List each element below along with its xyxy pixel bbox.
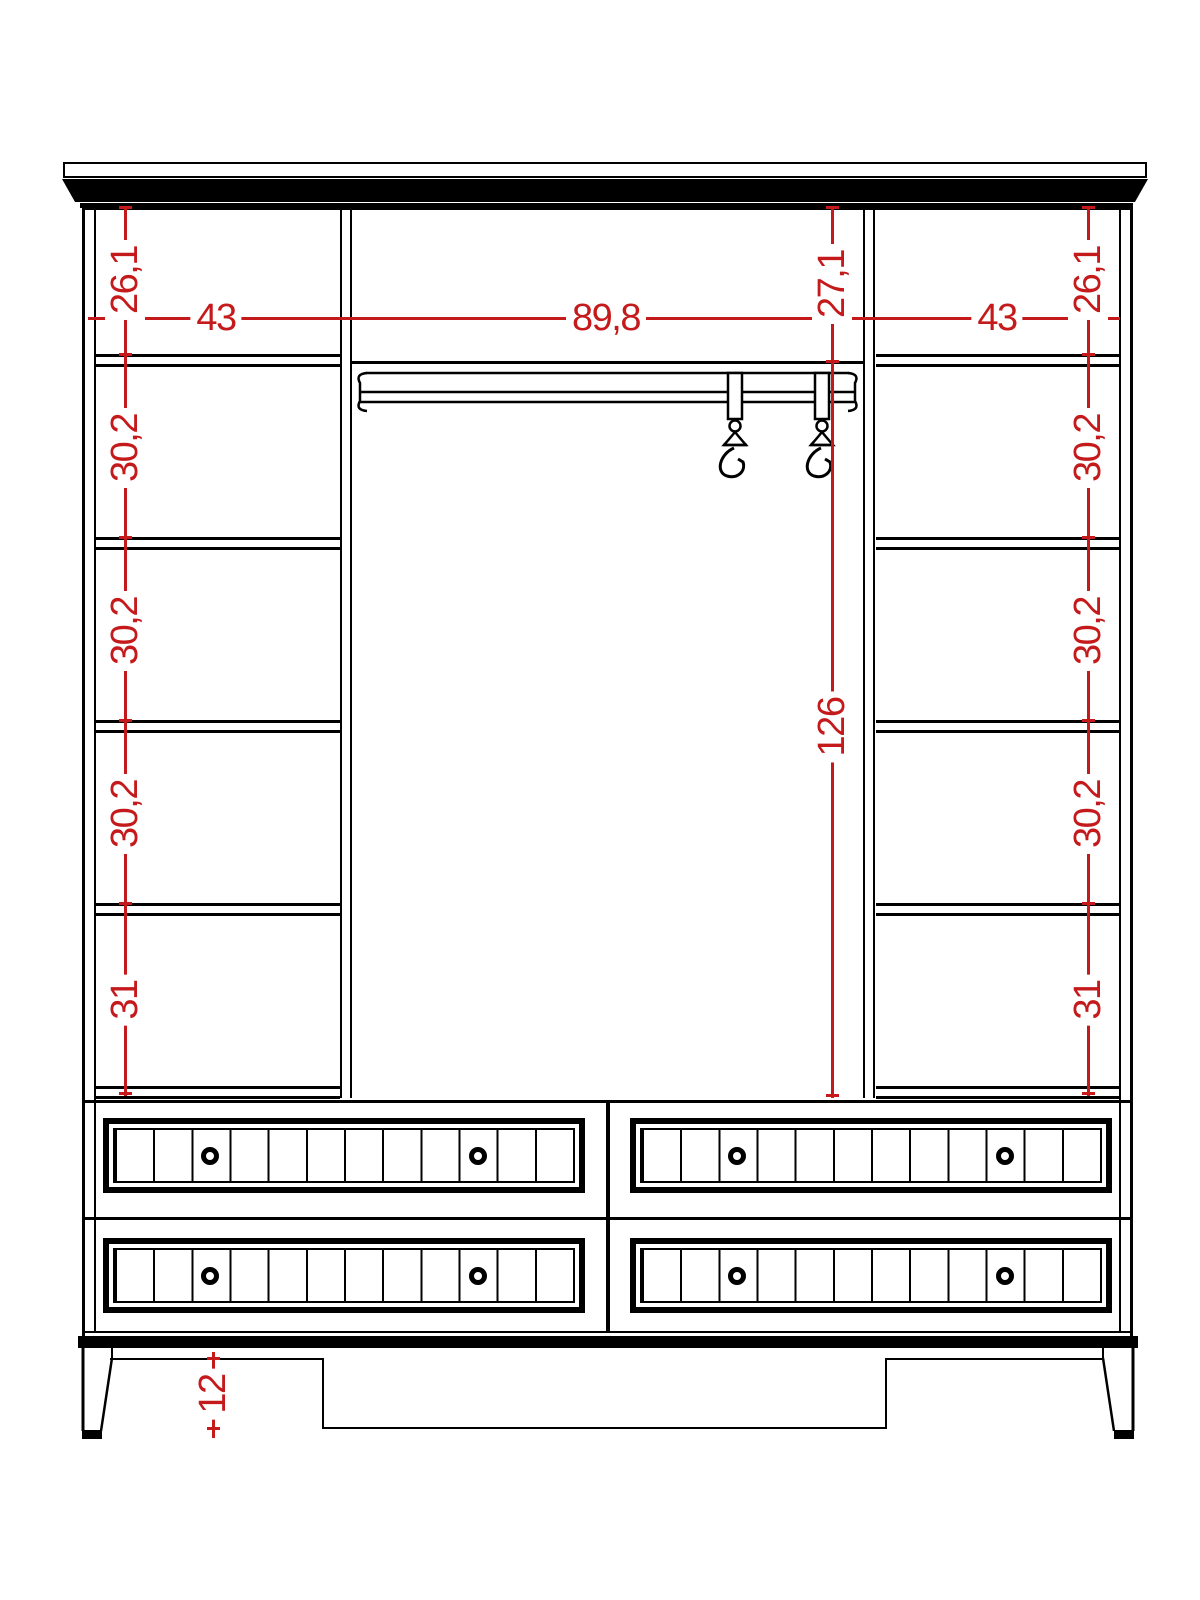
left-leg (80, 1346, 120, 1442)
right-side-panel-outer (1130, 207, 1133, 1348)
drawer-knob (201, 1147, 219, 1165)
dim-tick (119, 902, 132, 905)
dim-tick (119, 536, 132, 539)
right-shelf-5-top (876, 1086, 1120, 1089)
apron-line-right (886, 1358, 1104, 1360)
dim-tick (207, 1427, 220, 1430)
dim-label-center-top: 27,1 (812, 244, 852, 324)
dim-tick (1082, 206, 1095, 209)
hanger-hook-icon (720, 373, 747, 477)
left-shelf-4-top (96, 903, 340, 906)
drawer-knob (728, 1147, 746, 1165)
drawer-slats (642, 1250, 1100, 1301)
drawer-center-divider (606, 1103, 610, 1331)
right-shelf-2-bottom (876, 547, 1120, 550)
cornice-crown-band (62, 179, 1148, 202)
left-shelf-5-bottom (96, 1096, 340, 1099)
cornice-top-strip (63, 162, 1147, 178)
dim-label-right-top: 26,1 (1068, 240, 1108, 320)
dim-tick (1082, 1092, 1095, 1095)
dim-label-right-shelf3: 30,2 (1068, 774, 1108, 854)
dim-tick (1082, 719, 1095, 722)
dim-label-width-left: 43 (190, 298, 241, 338)
left-side-panel-outer (82, 207, 85, 1348)
dim-tick (1082, 902, 1095, 905)
dim-label-width-right: 43 (971, 298, 1022, 338)
drawer-knob (728, 1267, 746, 1285)
drawer-front (630, 1118, 1112, 1193)
right-divider-line-a (863, 209, 865, 1098)
left-divider-line-a (340, 209, 342, 1098)
drawer-front-panel (640, 1248, 1102, 1303)
drawer-front (630, 1238, 1112, 1313)
drawer-knob (469, 1147, 487, 1165)
carcass-top-line (82, 207, 1133, 210)
drawer-front-panel (113, 1248, 575, 1303)
left-shelf-2-top (96, 537, 340, 540)
dim-label-right-shelf2: 30,2 (1068, 591, 1108, 671)
right-leg (1096, 1346, 1136, 1442)
drawer-knob (996, 1267, 1014, 1285)
dim-tick (1082, 536, 1095, 539)
drawer-section-bottom-line (82, 1331, 1133, 1333)
dim-label-width-center: 89,8 (566, 298, 646, 338)
dim-label-right-bottom: 31 (1068, 974, 1108, 1025)
dim-label-right-shelf1: 30,2 (1068, 408, 1108, 488)
right-shelf-4-bottom (876, 913, 1120, 916)
left-shelf-3-bottom (96, 730, 340, 733)
right-side-panel-inner (1119, 209, 1121, 1331)
drawer-slats (115, 1250, 573, 1301)
left-side-panel-inner (94, 209, 96, 1331)
recess-bottom-edge (322, 1427, 887, 1429)
drawer-knob (996, 1147, 1014, 1165)
right-shelf-5-bottom (876, 1096, 1120, 1099)
left-shelf-2-bottom (96, 547, 340, 550)
left-shelf-1-bottom (96, 364, 340, 367)
dim-tick (826, 360, 839, 363)
drawer-slats (115, 1130, 573, 1181)
dim-tick (119, 719, 132, 722)
left-divider-line-b (350, 209, 352, 1098)
left-shelf-4-bottom (96, 913, 340, 916)
recess-right-edge (885, 1358, 887, 1427)
dim-label-left-shelf1: 30,2 (105, 408, 145, 488)
dim-label-center-height: 126 (812, 692, 852, 763)
wardrobe-technical-drawing: 43 89,8 43 26,1 30,2 30,2 30,2 31 26,1 3… (0, 0, 1200, 1600)
left-shelf-1-top (96, 354, 340, 357)
dim-label-left-bottom: 31 (105, 974, 145, 1025)
dim-tick (826, 1094, 839, 1097)
drawer-front (103, 1118, 585, 1193)
recess-left-edge (322, 1358, 324, 1427)
right-shelf-1-bottom (876, 364, 1120, 367)
drawer-front-panel (113, 1128, 575, 1183)
dim-tick (119, 353, 132, 356)
drawer-slats (642, 1130, 1100, 1181)
drawer-knob (469, 1267, 487, 1285)
dim-tick (119, 1092, 132, 1095)
dim-label-left-shelf3: 30,2 (105, 774, 145, 854)
left-shelf-3-top (96, 720, 340, 723)
drawer-knob (201, 1267, 219, 1285)
left-shelf-5-top (96, 1086, 340, 1089)
dim-label-leg-height: 12 (193, 1368, 233, 1419)
plinth-band (78, 1336, 1138, 1348)
right-divider-line-b (873, 209, 875, 1098)
drawer-front (103, 1238, 585, 1313)
hanging-rod (351, 361, 864, 481)
right-shelf-3-bottom (876, 730, 1120, 733)
dim-label-left-top: 26,1 (105, 240, 145, 320)
dim-tick (826, 206, 839, 209)
dim-tick (119, 206, 132, 209)
hanger-hook-icon (807, 373, 834, 477)
dim-line-center-heights (831, 207, 834, 1098)
dim-label-left-shelf2: 30,2 (105, 591, 145, 671)
dim-tick (207, 1357, 220, 1360)
drawer-front-panel (640, 1128, 1102, 1183)
dim-tick (1082, 353, 1095, 356)
